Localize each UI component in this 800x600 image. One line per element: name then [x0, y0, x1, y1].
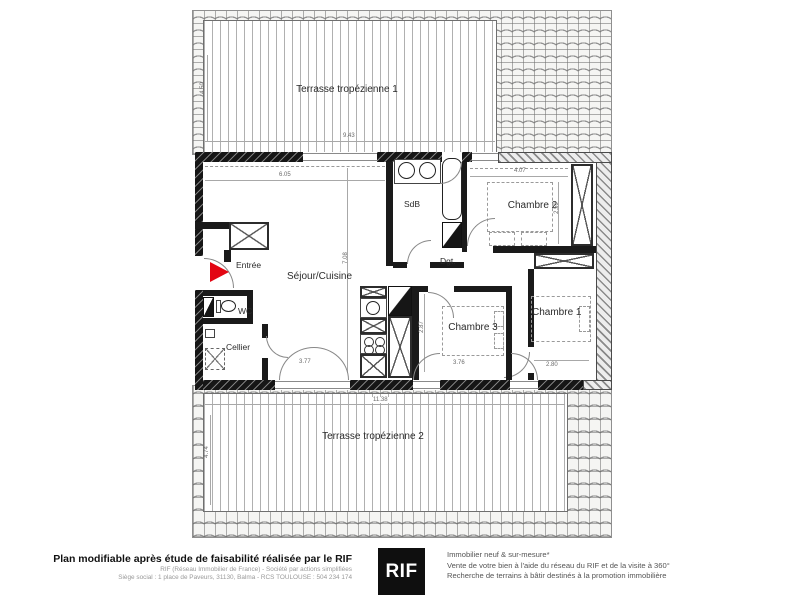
kitchen-sink-icon — [366, 301, 380, 315]
window-top-sejour — [303, 153, 377, 161]
terrace2-width-dim: 11.38 — [371, 397, 390, 403]
terrace1-height-dim: 4.50 — [200, 82, 206, 94]
wall-top-hatched — [498, 152, 612, 163]
chambre1-label: Chambre 1 — [532, 307, 581, 318]
kitchen-counter-top — [360, 286, 387, 298]
duct-wc — [203, 297, 214, 317]
wall-bottom-2 — [350, 380, 413, 390]
wall-sdb-east — [462, 162, 467, 252]
sejour-width-dim: 6.05 — [279, 172, 291, 178]
chambre3-height-dim: 2.87 — [419, 321, 425, 333]
terrace1-width-dim: 9.43 — [343, 133, 355, 139]
terrace2-vdim-line — [210, 415, 211, 505]
footer-left-block: Plan modifiable après étude de faisabili… — [53, 553, 352, 581]
sejour-lintel-dash — [205, 166, 385, 167]
sdb-sink-right-icon — [419, 162, 436, 179]
wall-top-1 — [195, 152, 303, 162]
terrace2-dim-line — [205, 404, 565, 405]
chambre3-pillow — [494, 333, 504, 349]
terrace1-vdim-line — [207, 55, 208, 141]
rif-logo: RIF — [378, 548, 425, 595]
window-top-chambre2 — [472, 153, 498, 161]
wall-cellier-east-2 — [262, 358, 268, 380]
wall-chambre2-bottom — [493, 246, 596, 253]
terrace2-height-dim: 4.74 — [204, 446, 210, 458]
wall-right-hatched — [596, 162, 612, 390]
entry-arrow — [210, 262, 229, 282]
kitchen-cabinet-2 — [360, 354, 387, 378]
cellier-label: Cellier — [226, 342, 250, 352]
toilet-bowl — [221, 300, 236, 312]
kitchen-cabinet-1 — [360, 318, 387, 334]
wall-sdb-bottom-1 — [393, 262, 407, 268]
sdb-label: SdB — [404, 199, 420, 209]
chambre3-label: Chambre 3 — [440, 322, 506, 333]
chambre2-dim-line — [470, 176, 568, 177]
window-bottom-sejour — [275, 381, 350, 389]
wall-wc-top — [203, 290, 253, 296]
window-bottom-corridor — [510, 381, 538, 389]
duct-sdb — [442, 222, 462, 248]
kitchen-hob-cell — [360, 334, 387, 354]
entree-label: Entrée — [236, 260, 261, 270]
terrace2-label: Terrasse tropézienne 2 — [318, 431, 428, 442]
terrace1-dim-line — [205, 141, 495, 142]
chambre2-wardrobe — [571, 164, 593, 246]
sdb-sink-left-icon — [398, 162, 415, 179]
wall-left-upper — [195, 152, 203, 256]
footer-company-line2: Siège social : 1 place de Paveurs, 31130… — [53, 574, 352, 581]
footer-service-line1: Immobilier neuf & sur-mesure* — [447, 550, 670, 561]
wall-chambre3-top-1 — [412, 286, 428, 292]
chambre2-width-dim: 4.07 — [514, 168, 526, 174]
chambre2-height-dim: 2.59 — [554, 202, 560, 214]
wall-chambre3-top-2 — [454, 286, 512, 292]
hall-closet — [534, 253, 594, 269]
chambre3-width-dim: 3.76 — [453, 360, 465, 366]
washing-machine — [205, 348, 225, 370]
wall-bottom-4 — [538, 380, 583, 390]
duct-kitchen — [388, 286, 412, 316]
wall-bottom-3 — [440, 380, 510, 390]
footer-company-line1: RIF (Réseau Immobilier de France) - Soci… — [53, 566, 352, 573]
sejour-dim-line — [205, 180, 385, 181]
footer-service-line3: Recherche de terrains à bâtir destinés à… — [447, 571, 670, 582]
terrace2-deck — [203, 393, 568, 512]
wall-top-3 — [462, 152, 472, 162]
dgt-label: Dgt. — [440, 256, 456, 266]
sejour-label: Séjour/Cuisine — [287, 271, 352, 282]
footer-service-line2: Vente de votre bien à l'aide du réseau d… — [447, 561, 670, 572]
wall-entree-top — [195, 222, 231, 229]
sejour-height-dim: 7.08 — [343, 252, 349, 264]
wall-bottom-1 — [195, 380, 275, 390]
cellier-small-box — [205, 329, 215, 338]
terrace1-label: Terrasse tropézienne 1 — [292, 84, 402, 95]
wall-wc-bottom — [203, 318, 253, 324]
wall-bottom-hatched — [583, 380, 612, 390]
chambre1-width-dim: 2.80 — [546, 362, 558, 368]
kitchen-tall-closet — [388, 316, 412, 378]
wall-entree-stub — [224, 250, 231, 262]
chambre1-dim-line — [534, 360, 589, 361]
footer-right-block: Immobilier neuf & sur-mesure* Vente de v… — [447, 550, 670, 582]
footer-headline: Plan modifiable après étude de faisabili… — [53, 553, 352, 565]
duct-box-entree — [229, 222, 269, 250]
floor-plan-page: Terrasse tropézienne 1 9.43 4.50 Terrass… — [0, 0, 800, 600]
window-bottom-chambre3 — [413, 381, 440, 389]
wc-label: WC — [238, 306, 252, 316]
wall-left-lower — [195, 290, 203, 390]
wall-sdb-west — [386, 162, 393, 266]
chambre2-pillow — [521, 232, 547, 246]
